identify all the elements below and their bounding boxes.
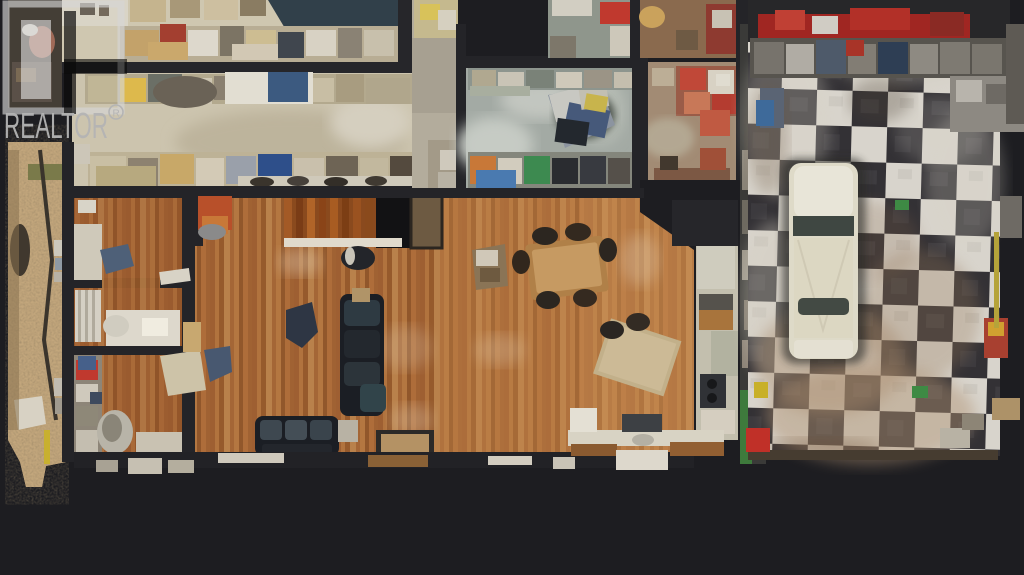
svg-text:REALTOR: REALTOR xyxy=(4,105,108,146)
svg-text:R: R xyxy=(113,109,120,120)
